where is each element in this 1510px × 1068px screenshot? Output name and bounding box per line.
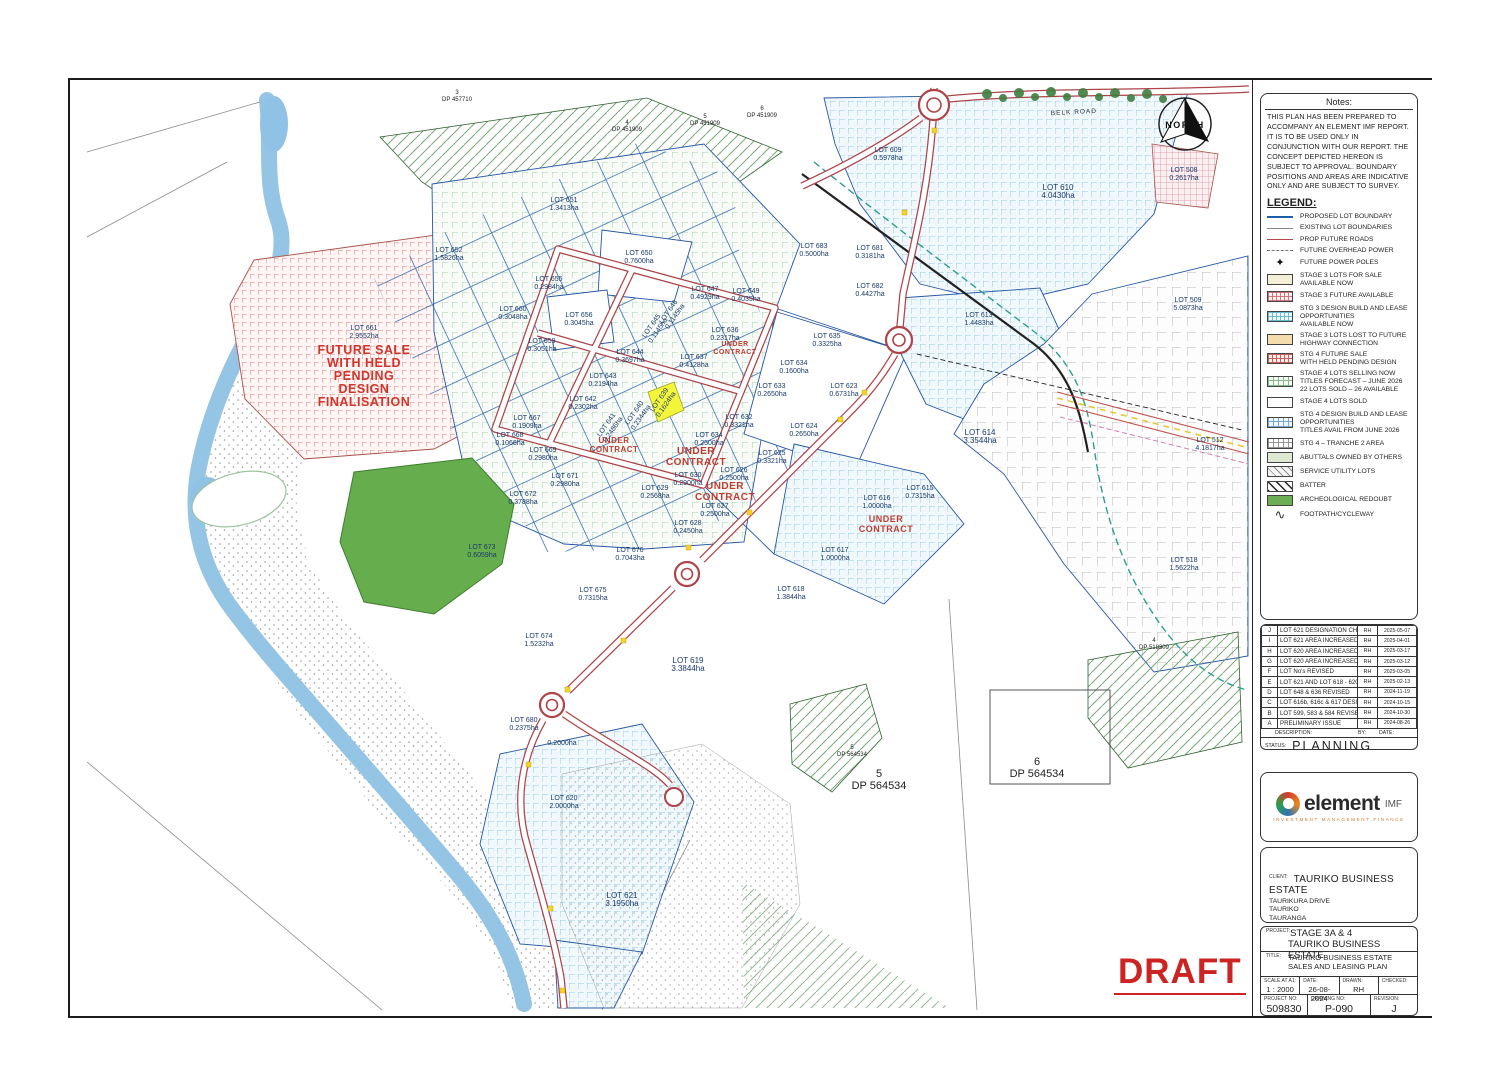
- lot-label: LOT 6500.7600ha: [624, 250, 653, 265]
- notes-body: THIS PLAN HAS BEEN PREPARED TO ACCOMPANY…: [1267, 113, 1411, 192]
- revision-cell: 2024-11-19: [1378, 687, 1417, 697]
- revision-row: ELOT 621 AND LOT 618 - 620 REVRH2025-02-…: [1262, 677, 1417, 687]
- lot-label: LOT 6690.2980ha: [528, 447, 557, 462]
- legend-label: STAGE 3 LOTS LOST TO FUTURE HIGHWAY CONN…: [1300, 332, 1406, 348]
- revision-cell: LOT 621 DESIGNATION CHANGED: [1278, 626, 1358, 636]
- lot-label: LOT 6741.5232ha: [524, 633, 553, 648]
- status-row: STATUS: PLANNING: [1261, 738, 1417, 750]
- revision-footer-date: DATE:: [1377, 729, 1417, 737]
- legend-label: STAGE 4 LOTS SOLD: [1300, 398, 1367, 406]
- revision-cell: B: [1262, 708, 1278, 718]
- legend-swatch-blackhatch: [1267, 481, 1293, 492]
- lot-label: LOT 6250.3321ha: [757, 450, 786, 465]
- legend-item: ✦FUTURE POWER POLES: [1267, 258, 1411, 269]
- lot-label: LOT 6340.2500ha: [694, 432, 723, 447]
- legend-swatch-greengrid: [1267, 376, 1293, 387]
- legend-item: STAGE 3 LOTS LOST TO FUTURE HIGHWAY CONN…: [1267, 332, 1411, 348]
- revision-cell: E: [1262, 677, 1278, 687]
- scale-value: 1 : 2000: [1264, 985, 1296, 994]
- lot-label: LOT 6181.3844ha: [776, 586, 805, 601]
- legend-label: STG 4 – TRANCHE 2 AREA: [1300, 440, 1384, 448]
- lot-label: LOT 6143.3544ha: [963, 428, 997, 445]
- legend-label: ARCHEOLOGICAL REDOUBT: [1300, 496, 1392, 504]
- revision-cell: 2024-10-15: [1378, 698, 1417, 708]
- project-no-label: PROJECT NO:: [1264, 996, 1304, 1002]
- drawn-cell: DRAWN: RH: [1340, 977, 1379, 994]
- legend-swatch-pinkhatch: [1267, 291, 1293, 302]
- legend-item: STG 4 FUTURE SALE WITH HELD PENDING DESI…: [1267, 351, 1411, 367]
- client-name: TAURIKO BUSINESS ESTATE: [1269, 874, 1409, 896]
- project-row: PROJECT: STAGE 3A & 4 TAURIKO BUSINESS E…: [1261, 927, 1417, 952]
- legend-label: STG 4 DESIGN BUILD AND LEASE OPPORTUNITI…: [1300, 411, 1407, 435]
- legend-swatch-cream: [1267, 274, 1293, 285]
- revision-row: ILOT 621 AREA INCREASEDRH2025-04-01: [1262, 636, 1417, 646]
- revision-cell: I: [1262, 636, 1278, 646]
- legend-item: ARCHEOLOGICAL REDOUBT: [1267, 495, 1411, 506]
- drawing-no-value: P-090: [1311, 1003, 1367, 1015]
- revision-cell: 2025-02-13: [1378, 677, 1417, 687]
- legend-item: ABUTTALS OWNED BY OTHERS: [1267, 452, 1411, 463]
- legend-swatch-tan: [1267, 334, 1293, 345]
- revision-cell: RH: [1358, 626, 1378, 636]
- legend-swatch-cyanhatch: [1267, 311, 1293, 322]
- title-block: PROJECT: STAGE 3A & 4 TAURIKO BUSINESS E…: [1260, 926, 1418, 1016]
- revision-cell: F: [1262, 667, 1278, 677]
- lot-label: LOT 6760.7043ha: [615, 547, 644, 562]
- client-line: TAURIKO: [1269, 906, 1409, 913]
- lot-label: LOT 6490.4035ha: [731, 288, 760, 303]
- lot-label: LOT 5124.1817ha: [1195, 437, 1224, 452]
- date-label: DATE:: [1303, 978, 1335, 984]
- legend-label: STAGE 4 LOTS SELLING NOW TITLES FORECAST…: [1300, 370, 1402, 394]
- lot-label: LOT 6590.3051ha: [527, 338, 556, 353]
- revision-cell: 2024-08-26: [1378, 718, 1417, 728]
- revision-cell: 2025-03-12: [1378, 656, 1417, 666]
- status-value: PLANNING: [1292, 739, 1372, 750]
- revision-row: BLOT 599, 583 & 584 REVISEDRH2024-10-30: [1262, 708, 1417, 718]
- project-no-value: 509830: [1264, 1003, 1304, 1015]
- legend-swatch-line-red: [1267, 239, 1293, 240]
- lot-label: LOT 6300.2900ha: [673, 472, 702, 487]
- lot-label: LOT 6550.2984ha: [534, 276, 563, 291]
- lot-label: LOT 6260.2500ha: [719, 467, 748, 482]
- drawn-label: DRAWN:: [1343, 978, 1375, 984]
- revision-row: JLOT 621 DESIGNATION CHANGEDRH2025-05-07: [1262, 626, 1417, 636]
- legend-label: BATTER: [1300, 482, 1326, 490]
- revision-value: J: [1374, 1003, 1414, 1015]
- date-cell: DATE: 26-08-2024: [1300, 977, 1339, 994]
- legend-label: STG 4 FUTURE SALE WITH HELD PENDING DESI…: [1300, 351, 1397, 367]
- lot-label: LOT 6290.2568ha: [640, 485, 669, 500]
- legend-label: ABUTTALS OWNED BY OTHERS: [1300, 454, 1402, 462]
- lot-label: LOT 6470.4929ha: [690, 286, 719, 301]
- revision-label: REVISION:: [1374, 996, 1414, 1002]
- revision-cell: RH: [1358, 636, 1378, 646]
- revision-cell: G: [1262, 656, 1278, 666]
- legend-label: FUTURE OVERHEAD POWER: [1300, 247, 1394, 255]
- revision-footer-by: BY:: [1356, 729, 1377, 737]
- legend-item: STAGE 3 LOTS FOR SALE AVAILABLE NOW: [1267, 272, 1411, 288]
- legend-swatch-redgrid: [1267, 353, 1293, 364]
- revision-table-footer: DESCRIPTION: BY: DATE:: [1261, 729, 1417, 738]
- revision-cell: C: [1262, 698, 1278, 708]
- lot-label: LOT 6131.4483ha: [964, 312, 993, 327]
- legend-swatch-squiggle: ∿: [1267, 509, 1293, 520]
- legend-label: PROPOSED LOT BOUNDARY: [1300, 213, 1392, 221]
- lot-label: LOT 6670.1909ha: [512, 415, 541, 430]
- lot-label: LOT 6161.0000ha: [862, 495, 891, 510]
- legend-item: STG 4 – TRANCHE 2 AREA: [1267, 438, 1411, 449]
- draft-stamp: DRAFT: [1114, 952, 1246, 995]
- lot-label: LOT 5095.0873ha: [1173, 297, 1202, 312]
- lot-label: LOT 6171.0000ha: [820, 547, 849, 562]
- lot-label: LOT 6511.3413ha: [549, 197, 578, 212]
- revision-cell: RH: [1358, 718, 1378, 728]
- lot-label: LOT 6330.2650ha: [757, 383, 786, 398]
- project-label: PROJECT:: [1266, 928, 1290, 934]
- revision-cell: 2025-03-17: [1378, 646, 1417, 656]
- legend-swatch-pole: ✦: [1267, 258, 1293, 269]
- project-no-cell: PROJECT NO: 509830: [1261, 995, 1308, 1015]
- revision-cell: LOT 621 AREA INCREASED: [1278, 636, 1358, 646]
- revision-cell: J: [1262, 626, 1278, 636]
- notes-legend-box: Notes: THIS PLAN HAS BEEN PREPARED TO AC…: [1260, 93, 1418, 620]
- logo-brand: element: [1304, 792, 1380, 816]
- revision-cell: 2025-03-05: [1378, 667, 1417, 677]
- legend-item: FUTURE OVERHEAD POWER: [1267, 247, 1411, 255]
- revision-cell: RH: [1358, 698, 1378, 708]
- logo-box: element IMF INVESTMENT MANAGEMENT FINANC…: [1260, 772, 1418, 842]
- lot-label: LOT 5080.2617ha: [1169, 167, 1198, 182]
- legend-item: BATTER: [1267, 481, 1411, 492]
- drawing-no-cell: DRAWING NO: P-090: [1308, 995, 1371, 1015]
- scale-cell: SCALE AT A1: 1 : 2000: [1261, 977, 1300, 994]
- lot-label: LOT 6150.7315ha: [905, 485, 934, 500]
- legend-label: STAGE 3 LOTS FOR SALE AVAILABLE NOW: [1300, 272, 1382, 288]
- north-label: NORTH: [1165, 120, 1205, 130]
- legend-item: STAGE 4 LOTS SELLING NOW TITLES FORECAST…: [1267, 370, 1411, 394]
- drawing-no-label: DRAWING NO:: [1311, 996, 1367, 1002]
- number-row: PROJECT NO: 509830 DRAWING NO: P-090 REV…: [1261, 995, 1417, 1015]
- legend-item: PROPOSED LOT BOUNDARY: [1267, 213, 1411, 221]
- revision-row: HLOT 620 AREA INCREASEDRH2025-03-17: [1262, 646, 1417, 656]
- checked-label: CHECKED:: [1382, 978, 1414, 984]
- legend-item: PROP FUTURE ROADS: [1267, 236, 1411, 244]
- legend-swatch-bluegrid: [1267, 417, 1293, 428]
- legend-title: LEGEND:: [1267, 197, 1411, 209]
- lot-label: LOT 6193.3844ha: [671, 656, 705, 673]
- revision-cell: LOT 616b, 616c & 617 DESIGNAT: [1278, 698, 1358, 708]
- legend-swatch-grayhatch: [1267, 466, 1293, 477]
- client-label: CLIENT:: [1269, 874, 1288, 880]
- notes-title: Notes:: [1265, 97, 1413, 110]
- status-label: STATUS:: [1265, 743, 1286, 749]
- legend-label: STG 3 DESIGN BUILD AND LEASE OPPORTUNITI…: [1300, 305, 1407, 329]
- revision-row: APRELIMINARY ISSUERH2024-08-26: [1262, 718, 1417, 728]
- revision-cell: RH: [1358, 687, 1378, 697]
- lot-label: LOT 6800.2375ha: [509, 717, 538, 732]
- lot-label: LOT 6680.1066ha: [495, 432, 524, 447]
- revision-cell: REVISION: J: [1371, 995, 1417, 1015]
- revision-footer-description: DESCRIPTION:: [1261, 729, 1356, 737]
- revision-cell: PRELIMINARY ISSUE: [1278, 718, 1358, 728]
- checked-cell: CHECKED:: [1379, 977, 1417, 994]
- lot-label: LOT 6600.3048ha: [498, 306, 527, 321]
- revision-cell: 2025-05-07: [1378, 626, 1417, 636]
- lot-label: LOT 6104.0430ha: [1041, 183, 1075, 200]
- title-line1: TAURIKO BUSINESS ESTATE: [1288, 953, 1412, 962]
- legend-swatch-green: [1267, 495, 1293, 506]
- drawn-value: RH: [1343, 985, 1375, 994]
- legend-list: PROPOSED LOT BOUNDARYEXISTING LOT BOUNDA…: [1267, 213, 1411, 520]
- revision-cell: LOT 599, 583 & 584 REVISED: [1278, 708, 1358, 718]
- lot-label: LOT 6370.4128ha: [679, 354, 708, 369]
- legend-item: EXISTING LOT BOUNDARIES: [1267, 224, 1411, 232]
- revision-row: DLOT 648 & 636 REVISEDRH2024-11-19: [1262, 687, 1417, 697]
- revision-row: FLOT No's REVISEDRH2025-03-05: [1262, 667, 1417, 677]
- lot-label: LOT 6820.4427ha: [855, 283, 884, 298]
- revision-cell: A: [1262, 718, 1278, 728]
- lot-label: LOT 5181.5622ha: [1169, 557, 1198, 572]
- title-line2: SALES AND LEASING PLAN: [1288, 962, 1412, 971]
- lot-label: LOT 6320.3321ha: [724, 414, 753, 429]
- map-canvas: NORTH BELK ROAD FUTURE SALEWITH HELDPEND…: [70, 80, 1252, 1016]
- revision-cell: RH: [1358, 677, 1378, 687]
- legend-item: STG 3 DESIGN BUILD AND LEASE OPPORTUNITI…: [1267, 305, 1411, 329]
- plan-page: NORTH BELK ROAD FUTURE SALEWITH HELDPEND…: [0, 0, 1510, 1068]
- revision-cell: RH: [1358, 656, 1378, 666]
- lot-label: LOT 6240.2650ha: [789, 423, 818, 438]
- lot-label: LOT 6720.3788ha: [508, 491, 537, 506]
- lot-label: LOT 6090.5978ha: [873, 147, 902, 162]
- legend-swatch-graygrid: [1267, 438, 1293, 449]
- legend-item: STG 4 DESIGN BUILD AND LEASE OPPORTUNITI…: [1267, 411, 1411, 435]
- lot-label: LOT 6430.2194ha: [588, 373, 617, 388]
- legend-swatch-sage: [1267, 452, 1293, 463]
- scale-label: SCALE AT A1:: [1264, 978, 1296, 984]
- lot-label: 0.2000ha: [547, 740, 576, 747]
- client-line: TAURANGA: [1269, 915, 1409, 922]
- legend-label: FOOTPATH/CYCLEWAY: [1300, 511, 1374, 519]
- legend-swatch-line-blue: [1267, 216, 1293, 218]
- lot-label: LOT 6213.1950ha: [605, 891, 639, 908]
- lot-label: LOT 6440.3697ha: [615, 349, 644, 364]
- lot-label: LOT 6560.3045ha: [564, 312, 593, 327]
- logo-tagline: INVESTMENT MANAGEMENT FINANCE: [1273, 817, 1404, 822]
- revision-cell: D: [1262, 687, 1278, 697]
- legend-label: SERVICE UTILITY LOTS: [1300, 468, 1375, 476]
- revision-cell: RH: [1358, 667, 1378, 677]
- revision-cell: RH: [1358, 708, 1378, 718]
- lot-label: LOT 6830.5000ha: [799, 243, 828, 258]
- revision-cell: RH: [1358, 646, 1378, 656]
- legend-item: STAGE 4 LOTS SOLD: [1267, 397, 1411, 408]
- revision-cell: LOT No's REVISED: [1278, 667, 1358, 677]
- lot-label: LOT 6270.2500ha: [700, 503, 729, 518]
- title-row: TITLE: TAURIKO BUSINESS ESTATE SALES AND…: [1261, 952, 1417, 977]
- plan-sheet: NORTH BELK ROAD FUTURE SALEWITH HELDPEND…: [68, 78, 1432, 1018]
- logo-suffix: IMF: [1385, 799, 1402, 810]
- lot-label: LOT 6730.6059ha: [467, 544, 496, 559]
- legend-swatch-line-dash: [1267, 250, 1293, 251]
- revision-cell: 2025-04-01: [1378, 636, 1417, 646]
- revision-cell: LOT 620 AREA INCREASED: [1278, 656, 1358, 666]
- project-line1: STAGE 3A & 4: [1288, 928, 1412, 939]
- revision-row: GLOT 620 AREA INCREASEDRH2025-03-12: [1262, 656, 1417, 666]
- revision-cell: H: [1262, 646, 1278, 656]
- side-panel: Notes: THIS PLAN HAS BEEN PREPARED TO AC…: [1252, 80, 1432, 1016]
- lot-label: LOT 6360.2317ha: [710, 327, 739, 342]
- lot-label: LOT 6750.7315ha: [578, 587, 607, 602]
- lot-label: LOT 6521.5826ha: [434, 247, 463, 262]
- title-label: TITLE:: [1266, 953, 1281, 959]
- legend-label: STAGE 3 FUTURE AVAILABLE: [1300, 292, 1393, 300]
- lot-label: LOT 6340.1600ha: [779, 360, 808, 375]
- revision-cell: LOT 621 AND LOT 618 - 620 REV: [1278, 677, 1358, 687]
- revision-table: JLOT 621 DESIGNATION CHANGEDRH2025-05-07…: [1261, 625, 1417, 729]
- client-line: TAURIKURA DRIVE: [1269, 898, 1409, 905]
- revision-cell: LOT 620 AREA INCREASED: [1278, 646, 1358, 656]
- legend-label: FUTURE POWER POLES: [1300, 259, 1378, 267]
- lot-label: LOT 6420.2302ha: [568, 396, 597, 411]
- legend-item: STAGE 3 FUTURE AVAILABLE: [1267, 291, 1411, 302]
- lot-label: LOT 6280.2450ha: [673, 520, 702, 535]
- lot-label: LOT 6710.2980ha: [550, 473, 579, 488]
- legend-label: PROP FUTURE ROADS: [1300, 236, 1373, 244]
- lot-label: LOT 6810.3181ha: [855, 245, 884, 260]
- revision-cell: LOT 648 & 636 REVISED: [1278, 687, 1358, 697]
- revision-cell: 2024-10-30: [1378, 708, 1417, 718]
- legend-item: SERVICE UTILITY LOTS: [1267, 466, 1411, 477]
- client-box: CLIENT: TAURIKO BUSINESS ESTATE TAURIKUR…: [1260, 847, 1418, 923]
- revision-row: CLOT 616b, 616c & 617 DESIGNATRH2024-10-…: [1262, 698, 1417, 708]
- legend-swatch-white: [1267, 397, 1293, 408]
- element-imf-logo-icon: [1276, 792, 1300, 816]
- lot-label: LOT 6612.9552ha: [349, 325, 378, 340]
- scale-date-row: SCALE AT A1: 1 : 2000 DATE: 26-08-2024 D…: [1261, 977, 1417, 995]
- legend-item: ∿FOOTPATH/CYCLEWAY: [1267, 509, 1411, 520]
- legend-label: EXISTING LOT BOUNDARIES: [1300, 224, 1392, 232]
- legend-swatch-line-gray: [1267, 228, 1293, 229]
- revision-table-box: JLOT 621 DESIGNATION CHANGEDRH2025-05-07…: [1260, 624, 1418, 750]
- lot-label: LOT 6350.3325ha: [812, 333, 841, 348]
- lot-label: LOT 6230.6731ha: [829, 383, 858, 398]
- lot-label: LOT 6202.0000ha: [549, 795, 578, 810]
